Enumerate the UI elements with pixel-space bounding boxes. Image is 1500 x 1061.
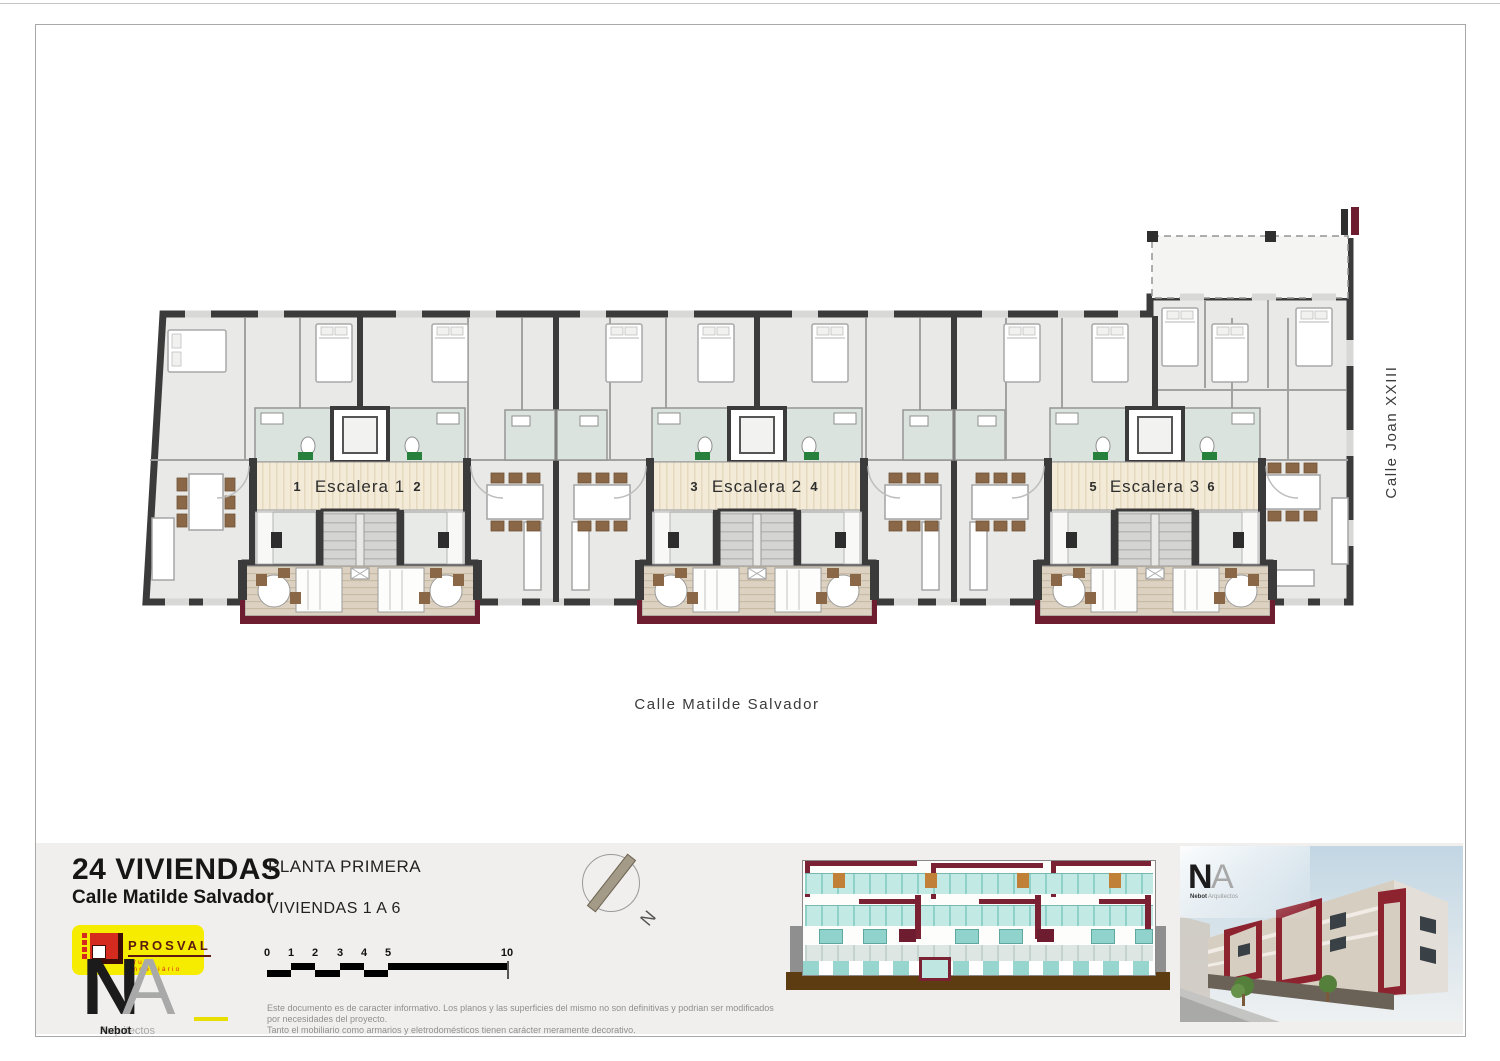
unit-number-5: 5: [1089, 479, 1096, 494]
core-label-1: Escalera 1: [315, 477, 405, 496]
roof-terrace: [1147, 207, 1359, 298]
elevation-building: [802, 860, 1156, 976]
unit-number-1: 1: [293, 479, 300, 494]
na-logo-dash: [194, 1017, 228, 1021]
drawing-sheet: Escalera 1 Escalera 2 Escalera 3 1 2 3 4…: [0, 0, 1500, 1061]
north-needle: [587, 854, 636, 913]
scale-tick-1: 1: [288, 947, 294, 959]
unit-number-6: 6: [1207, 479, 1214, 494]
render-na-firm-light: Arquitectos: [1208, 894, 1238, 900]
disclaimer-line-2: Tanto el mobiliario como armarios y elet…: [267, 1025, 787, 1036]
title-band: 24 VIVIENDAS Calle Matilde Salvador PROS…: [36, 843, 1463, 1034]
scale-tick-2: 2: [312, 947, 318, 959]
disclaimer-line-1: Este documento es de caracter informativ…: [267, 1003, 787, 1025]
scale-tick-0: 0: [264, 947, 270, 959]
core-label-3: Escalera 3: [1110, 477, 1200, 496]
nebot-arquitectos-logo: N A NebotArquitectos: [82, 955, 242, 1033]
unit-number-4: 4: [810, 479, 818, 494]
na-logo-a: A: [122, 941, 175, 1033]
north-label: N: [636, 907, 660, 930]
street-label-bottom: Calle Matilde Salvador: [634, 696, 819, 713]
scale-tick-10: 10: [501, 947, 513, 959]
building-render: N A Nebot Arquitectos: [1180, 846, 1463, 1022]
scale-tick-3: 3: [337, 947, 343, 959]
core-label-2: Escalera 2: [712, 477, 802, 496]
project-title: 24 VIVIENDAS: [72, 853, 281, 887]
elevation-drawing: [786, 852, 1170, 994]
render-na-logo-a: A: [1211, 858, 1234, 896]
street-label-right: Calle Joan XXIII: [1383, 365, 1400, 498]
disclaimer: Este documento es de caracter informativ…: [267, 1003, 787, 1036]
na-firm-name: NebotArquitectos: [100, 1025, 155, 1037]
project-address: Calle Matilde Salvador: [72, 887, 274, 909]
render-na-firm-bold: Nebot: [1190, 894, 1207, 900]
north-arrow: N: [582, 854, 640, 912]
balcony-3: [1033, 560, 1277, 624]
scale-tick-4: 4: [361, 947, 367, 959]
unit-number-2: 2: [413, 479, 420, 494]
unit-number-3: 3: [690, 479, 697, 494]
scale-tick-5: 5: [385, 947, 391, 959]
floor-plan: Escalera 1 Escalera 2 Escalera 3 1 2 3 4…: [0, 0, 1500, 843]
balcony-1: [238, 560, 482, 624]
elevation-side-wall: [790, 926, 802, 972]
na-firm-bold: Nebot: [100, 1025, 131, 1037]
render-na-logo-n: N: [1188, 858, 1213, 896]
balcony-2: [635, 560, 879, 624]
scale-bar: 0 1 2 3 4 5 10: [265, 947, 535, 991]
sheet-title: PLANTA PRIMERA: [268, 857, 421, 877]
sheet-subtitle: VIVIENDAS 1 A 6: [268, 900, 401, 918]
